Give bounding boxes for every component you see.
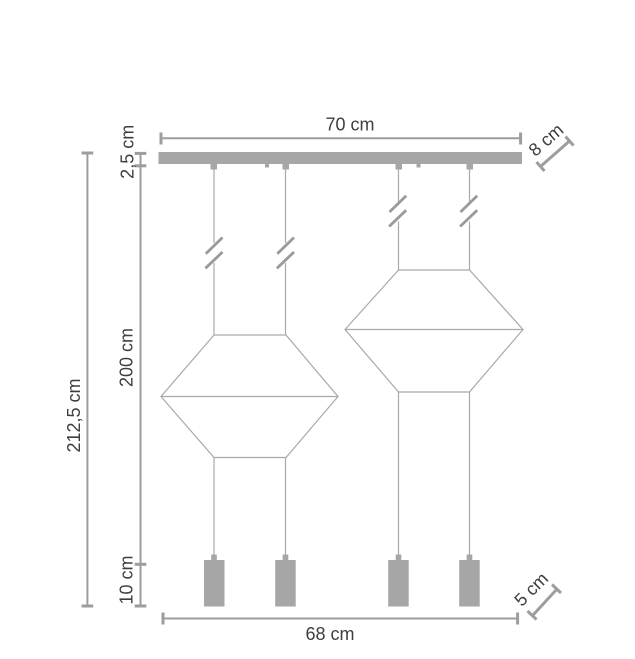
svg-text:10 cm: 10 cm [117, 555, 137, 604]
svg-text:200 cm: 200 cm [117, 328, 137, 387]
svg-text:68 cm: 68 cm [305, 624, 354, 644]
svg-text:212,5 cm: 212,5 cm [64, 378, 84, 452]
svg-text:2,5 cm: 2,5 cm [118, 125, 138, 179]
svg-text:70 cm: 70 cm [325, 115, 374, 135]
